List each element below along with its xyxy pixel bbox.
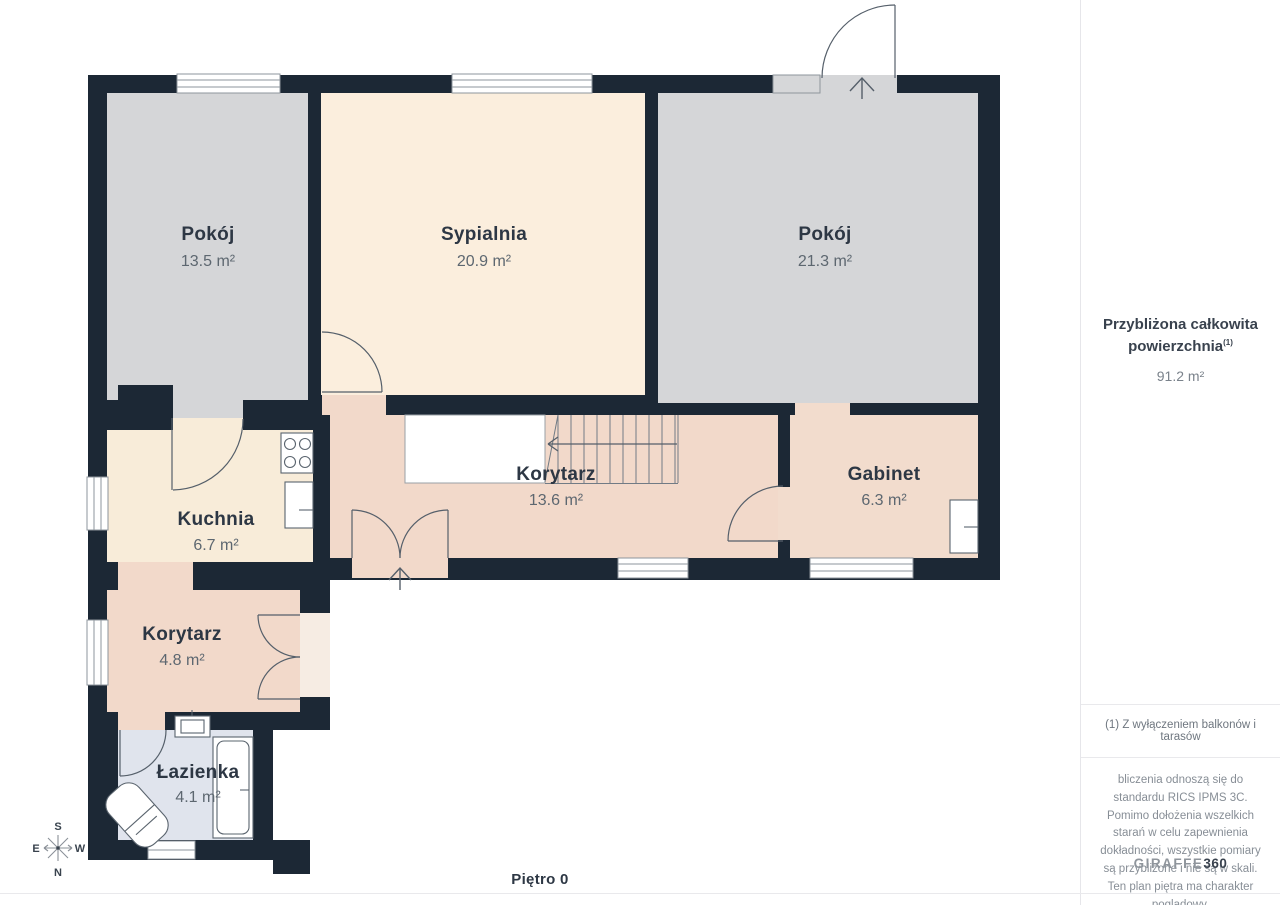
room-name: Korytarz [516,464,595,485]
floorplan-page: Pokój 13.5 m² Sypialnia 20.9 m² Pokój 21… [0,0,1280,905]
room-name: Korytarz [142,624,221,645]
brand-name: GIRAFFE [1134,856,1204,871]
wall-chimney [118,385,173,400]
floor-pokoj-2 [658,93,978,403]
compass-right: W [75,843,86,855]
footnote-text: (1) Z wyłączeniem balkonów i tarasów [1081,705,1280,757]
room-area: 13.6 m² [529,492,584,509]
total-area-block: Przybliżona całkowita powierzchnia(1) 91… [1081,314,1280,384]
desk-icon [950,500,978,553]
room-name: Łazienka [157,762,240,783]
window [87,620,108,685]
info-sidebar: Przybliżona całkowita powierzchnia(1) 91… [1080,0,1280,905]
wall-block-bath-corner [273,840,310,874]
room-name: Gabinet [848,464,921,485]
window [810,558,913,578]
threshold-pokoj2-gabinet [795,403,850,415]
room-area: 20.9 m² [457,253,512,270]
room-area: 6.7 m² [193,537,239,554]
footer-divider [0,893,1280,894]
kitchen-sink-icon [285,482,313,528]
stove-icon [281,433,313,473]
bathtub-icon [213,737,253,838]
disclaimer-text: bliczenia odnoszą się do standardu RICS … [1081,772,1280,905]
window [452,74,592,93]
compass-bottom: N [54,867,62,879]
floor-korytarz-small [107,590,300,712]
threshold-terrace-door [300,613,330,697]
total-area-title-text: Przybliżona całkowita powierzchnia [1103,316,1258,355]
threshold-kuchnia-top [173,418,243,430]
threshold-gabinet [778,487,790,540]
room-name: Kuchnia [177,509,254,530]
room-area: 13.5 m² [181,253,236,270]
threshold-pokoj1-kuchnia [173,400,243,418]
threshold-entrance-top [820,75,897,93]
door-entrance-top [822,5,895,78]
compass-left: E [32,843,39,855]
brand-number: 360 [1203,856,1227,871]
divider [1081,757,1280,758]
room-name: Sypialnia [441,224,527,245]
room-area: 4.1 m² [175,789,221,806]
window [618,558,688,578]
total-area-title: Przybliżona całkowita powierzchnia(1) [1081,314,1280,358]
floor-label: Piętro 0 [511,871,568,888]
room-name: Pokój [798,224,851,245]
floor-pokoj-1 [107,93,308,400]
threshold-sypialnia [322,395,386,415]
window [177,74,280,93]
threshold-lazienka [118,712,165,730]
room-area: 6.3 m² [861,492,907,509]
room-area: 21.3 m² [798,253,853,270]
threshold-kuchnia-korytarz [118,562,193,590]
window [87,477,108,530]
window-sidelight [773,75,820,93]
compass-top: S [54,821,61,833]
total-area-value: 91.2 m² [1081,368,1280,384]
room-name: Pokój [181,224,234,245]
compass-rose-icon: S E W N [32,821,85,879]
giraffe360-logo: GIRAFFE360 [1081,856,1280,871]
total-area-footnote-marker: (1) [1223,338,1233,347]
room-area: 4.8 m² [159,652,205,669]
